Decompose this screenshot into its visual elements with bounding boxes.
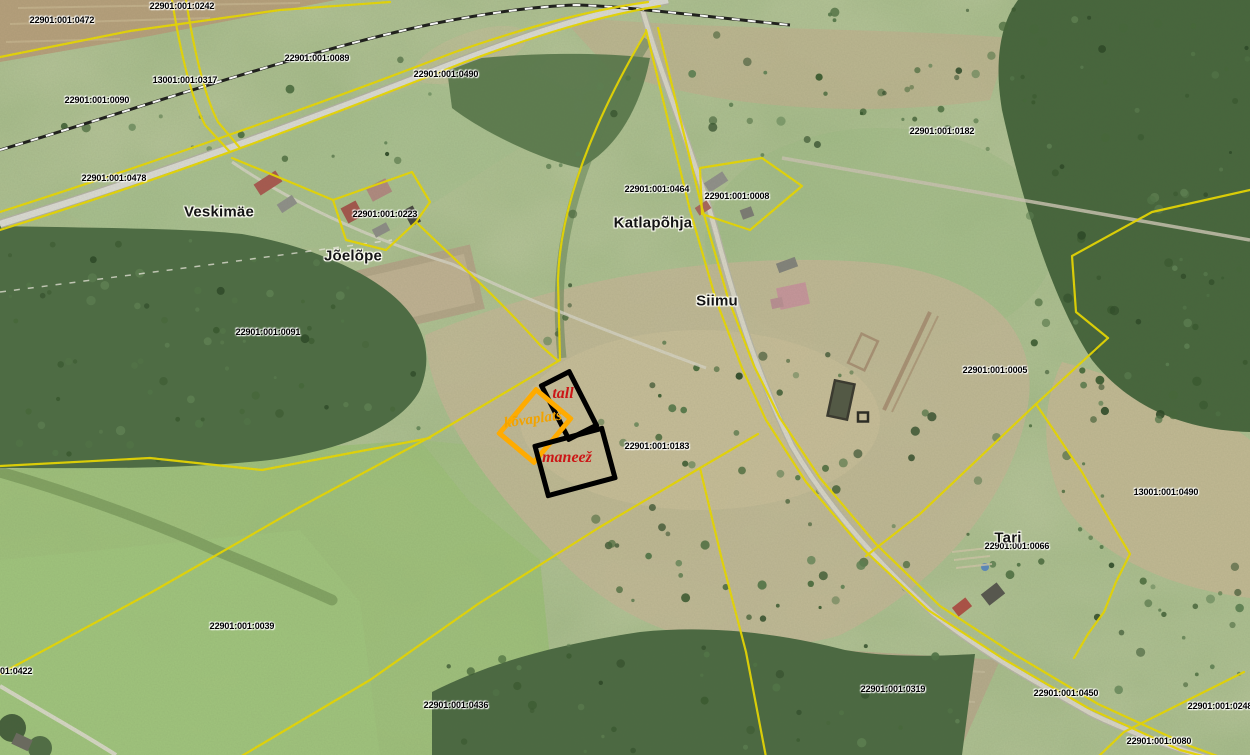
parcel-label: 22901:001:0183 (625, 441, 690, 451)
parcel-label: 22901:001:0008 (705, 191, 770, 201)
map-viewport[interactable]: 22901:001:047222901:001:024213001:001:03… (0, 0, 1250, 755)
parcel-label: 22901:001:0005 (963, 365, 1028, 375)
parcel-label: 22901:001:0080 (1127, 736, 1192, 746)
parcel-label: 22901:001:0223 (353, 209, 418, 219)
parcel-label: 22901:001:0472 (30, 15, 95, 25)
parcel-label: 22901:001:0450 (1034, 688, 1099, 698)
place-name-label: Tari (994, 530, 1021, 547)
annotation-label-maneez: maneež (542, 449, 592, 467)
place-name-label: Jõelõpe (324, 248, 382, 265)
parcel-label: 22901:001:0091 (236, 327, 301, 337)
map-overlay-labels: 22901:001:047222901:001:024213001:001:03… (0, 0, 1250, 755)
parcel-label: 22901:001:0182 (910, 126, 975, 136)
parcel-label: 22901:001:0478 (82, 173, 147, 183)
place-name-label: Siimu (696, 293, 738, 310)
parcel-label: 22901:001:0436 (424, 700, 489, 710)
parcel-label: 22901:001:0089 (285, 53, 350, 63)
place-name-label: Veskimäe (184, 204, 254, 221)
parcel-label: 22901:001:0422 (0, 666, 32, 676)
parcel-label: 13001:001:0317 (153, 75, 218, 85)
parcel-label: 22901:001:0090 (65, 95, 130, 105)
annotation-label-tall: tall (552, 385, 573, 403)
parcel-label: 22901:001:0490 (414, 69, 479, 79)
parcel-label: 13001:001:0490 (1134, 487, 1199, 497)
parcel-label: 22901:001:0464 (625, 184, 690, 194)
place-name-label: Katlapõhja (614, 215, 693, 232)
parcel-label: 22901:001:0039 (210, 621, 275, 631)
parcel-label: 22901:001:0319 (861, 684, 926, 694)
parcel-label: 22901:001:0242 (150, 1, 215, 11)
parcel-label: 22901:001:0248 (1188, 701, 1250, 711)
